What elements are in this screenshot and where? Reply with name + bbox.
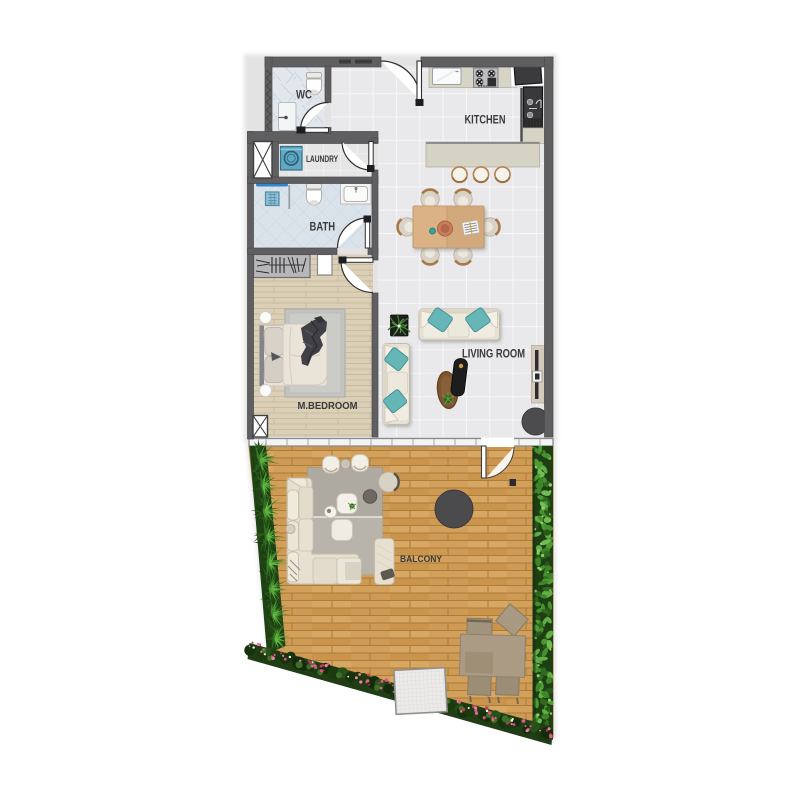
svg-text:LIVING ROOM: LIVING ROOM xyxy=(462,349,525,361)
svg-text:WC: WC xyxy=(296,88,312,102)
svg-text:BALCONY: BALCONY xyxy=(400,554,443,565)
svg-text:M.BEDROOM: M.BEDROOM xyxy=(298,400,358,412)
svg-text:KITCHEN: KITCHEN xyxy=(465,112,506,126)
svg-text:LAUNDRY: LAUNDRY xyxy=(306,154,338,165)
svg-text:BATH: BATH xyxy=(310,221,336,234)
